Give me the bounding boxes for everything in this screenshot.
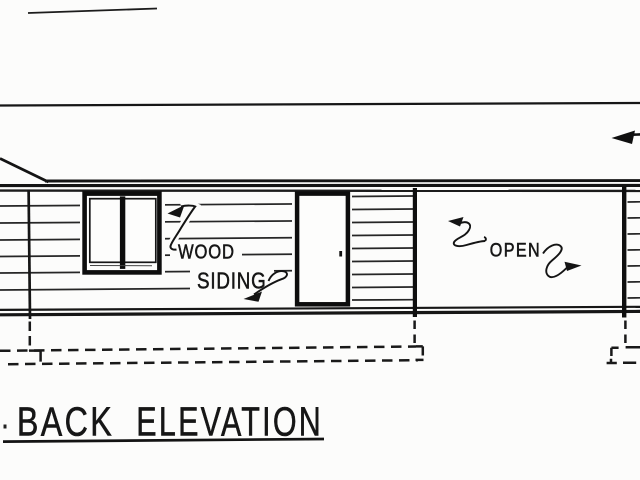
svg-text:SIDING: SIDING bbox=[197, 268, 267, 295]
svg-text:ELEVATION: ELEVATION bbox=[136, 398, 323, 445]
svg-text:BACK: BACK bbox=[17, 399, 114, 445]
svg-text:WOOD: WOOD bbox=[178, 240, 235, 263]
svg-text:OPEN: OPEN bbox=[490, 239, 541, 261]
